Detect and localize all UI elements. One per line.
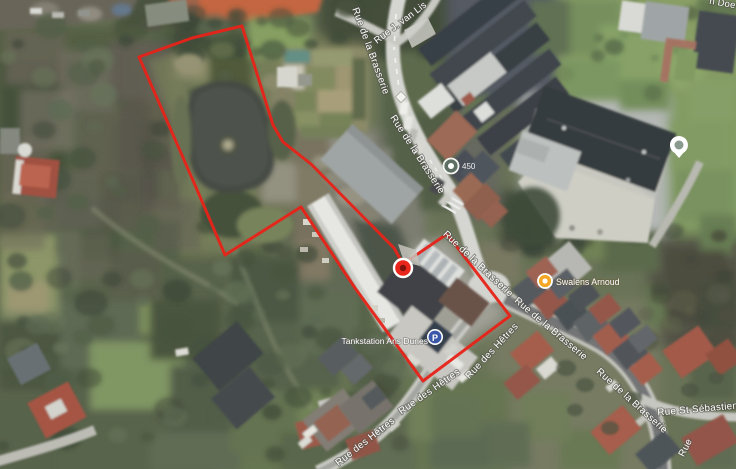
- svg-text:P: P: [432, 333, 438, 343]
- svg-text:450: 450: [462, 162, 476, 171]
- svg-text:Swalens Arnoud: Swalens Arnoud: [556, 277, 620, 287]
- svg-text:Tankstation Ans Dunes: Tankstation Ans Dunes: [342, 336, 428, 346]
